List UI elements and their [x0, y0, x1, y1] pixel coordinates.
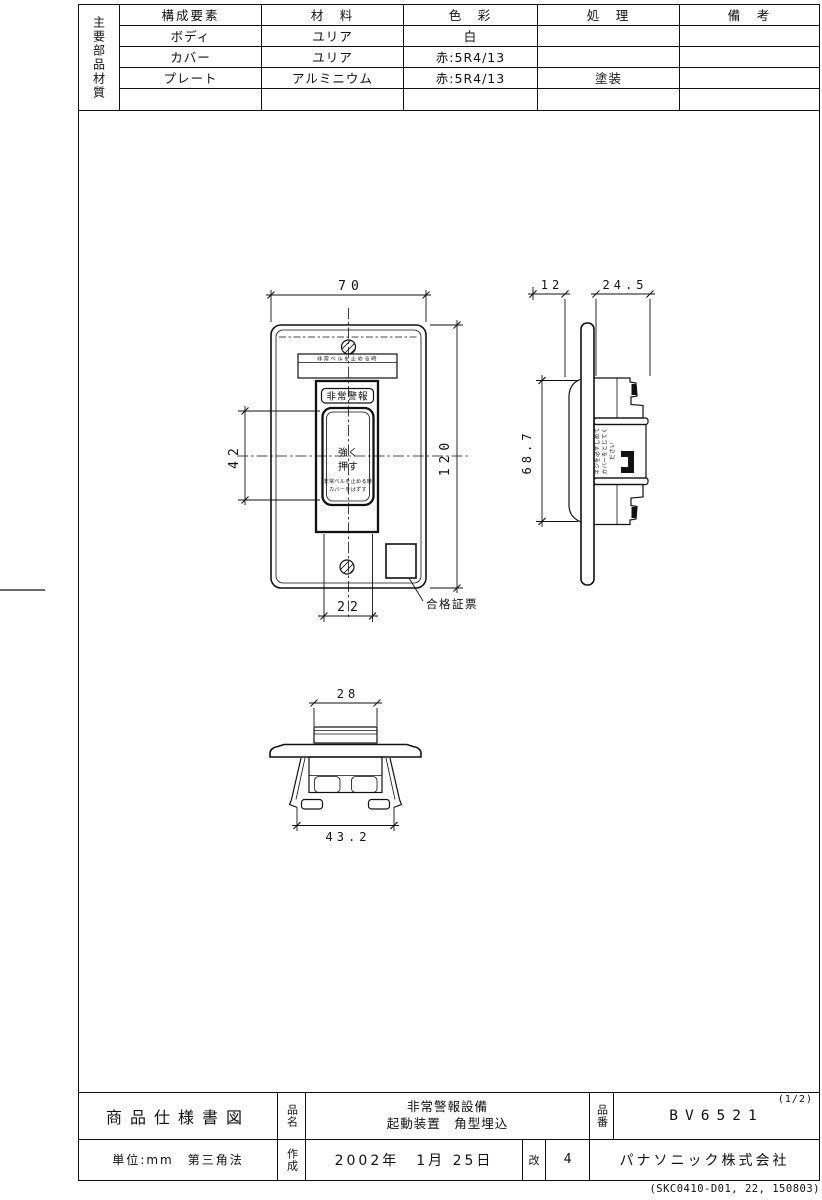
cell-component	[120, 89, 262, 110]
cell-treatment: 塗装	[538, 68, 680, 89]
materials-table-vertical-header: 主要部品材質	[79, 5, 120, 110]
product-name-label: 品名	[284, 1104, 300, 1128]
cell-color: 赤:5R4/13	[404, 47, 538, 68]
cell-remarks	[680, 89, 819, 110]
cell-component: プレート	[120, 68, 262, 89]
product-number-cell: (1/2) BV6521	[614, 1093, 819, 1139]
revision-label: 改	[523, 1140, 546, 1180]
cell-treatment	[538, 89, 680, 110]
created-label: 作成	[284, 1148, 300, 1172]
cell-treatment	[538, 26, 680, 47]
created-date: 2002年 1月 25日	[306, 1140, 523, 1180]
product-number: BV6521	[669, 1108, 763, 1124]
company-name: パナソニック株式会社	[590, 1140, 819, 1180]
cell-component: カバー	[120, 47, 262, 68]
cell-remarks	[680, 68, 819, 89]
product-name: 非常警報設備 起動装置 角型埋込	[306, 1093, 590, 1139]
col-header-remarks: 備 考	[680, 5, 819, 26]
cell-material	[262, 89, 404, 110]
materials-table-grid: 構成要素 材 料 色 彩 処 理 備 考 ボディ ユリア 白 カバー ユリア 赤…	[120, 5, 819, 110]
materials-table: 主要部品材質 構成要素 材 料 色 彩 処 理 備 考 ボディ ユリア 白 カバ…	[79, 5, 819, 111]
product-number-label: 品番	[594, 1104, 610, 1128]
col-header-material: 材 料	[262, 5, 404, 26]
cell-treatment	[538, 47, 680, 68]
page-indicator: (1/2)	[778, 1094, 813, 1105]
cell-material: ユリア	[262, 47, 404, 68]
title-block-row2: 単位:mm 第三角法 作成 2002年 1月 25日 改 4 パナソニック株式会…	[79, 1140, 819, 1180]
doc-type-title: 商品仕様書図	[79, 1093, 278, 1139]
cell-color: 赤:5R4/13	[404, 68, 538, 89]
cell-material: ユリア	[262, 26, 404, 47]
col-header-color: 色 彩	[404, 5, 538, 26]
col-header-treatment: 処 理	[538, 5, 680, 26]
product-name-line2: 起動装置 角型埋込	[387, 1116, 509, 1133]
revision-number: 4	[546, 1140, 590, 1180]
cell-component: ボディ	[120, 26, 262, 47]
cell-remarks	[680, 26, 819, 47]
document-code: (SKC0410-D01, 22, 150803)	[649, 1183, 820, 1195]
units-and-projection: 単位:mm 第三角法	[79, 1140, 278, 1180]
drawing-sheet-frame: 主要部品材質 構成要素 材 料 色 彩 処 理 備 考 ボディ ユリア 白 カバ…	[78, 4, 820, 1181]
col-header-component: 構成要素	[120, 5, 262, 26]
product-name-line1: 非常警報設備	[407, 1099, 488, 1116]
cell-color	[404, 89, 538, 110]
cell-color: 白	[404, 26, 538, 47]
title-block-row1: 商品仕様書図 品名 非常警報設備 起動装置 角型埋込 品番 (1/2) BV65…	[79, 1093, 819, 1140]
cell-remarks	[680, 47, 819, 68]
title-block: 商品仕様書図 品名 非常警報設備 起動装置 角型埋込 品番 (1/2) BV65…	[79, 1092, 819, 1180]
cell-material: アルミニウム	[262, 68, 404, 89]
